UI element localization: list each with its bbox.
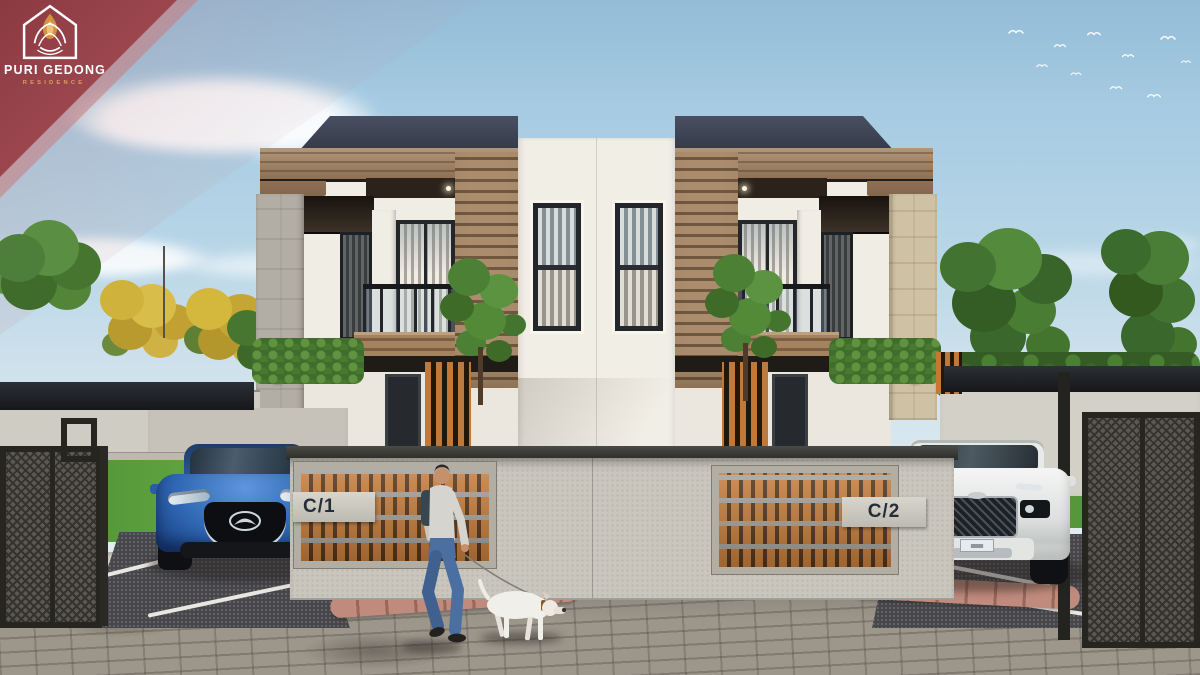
pedestrian (408, 462, 478, 658)
bird-icon (1054, 43, 1067, 49)
unit-label: C/2 (868, 501, 901, 523)
unit-label-plate-right: C/2 (842, 497, 926, 527)
carport-roof-left (0, 382, 254, 410)
brand-logo-icon (22, 4, 78, 60)
mesh-gate-left (0, 446, 102, 628)
bird-icon (1070, 71, 1081, 76)
wall-seam (592, 458, 593, 598)
bird-icon (1036, 63, 1048, 68)
carport-roof-right (944, 366, 1200, 392)
gate-handle (61, 418, 97, 462)
license-plate (960, 539, 994, 552)
courtyard-tree (418, 252, 548, 407)
brand-subtitle: RESIDENCE (4, 80, 104, 86)
mesh-gate-right (1082, 412, 1200, 648)
utility-pole (163, 246, 165, 338)
bird-icon (1110, 85, 1123, 91)
hip-roof (675, 112, 937, 152)
gate-frame (50, 452, 55, 622)
background-tree (0, 220, 95, 340)
downlight (446, 186, 451, 191)
unit-label: C/1 (303, 496, 336, 518)
hedge (252, 338, 364, 384)
bird-icon (1147, 92, 1161, 98)
bird-icon (1181, 59, 1191, 64)
hip-roof (256, 112, 518, 152)
tall-window (615, 203, 663, 331)
downlight (742, 186, 747, 191)
bird-icon (1122, 53, 1135, 59)
hyundai-emblem-icon (968, 492, 986, 499)
gate-frame (1140, 418, 1145, 642)
mazda-emblem-icon (224, 508, 266, 534)
bird-icon (1160, 34, 1176, 41)
stone-column (256, 194, 304, 420)
hedge (829, 338, 941, 384)
courtyard-tree (683, 248, 813, 403)
architectural-render: PURI GEDONG RESIDENCE (0, 0, 1200, 675)
bird-icon (1008, 28, 1024, 35)
dog (478, 578, 566, 646)
headlight (1020, 500, 1050, 518)
window-mullion (620, 265, 658, 270)
gate-post (100, 446, 108, 626)
stone-column (889, 194, 937, 420)
brand-name: PURI GEDONG (4, 63, 104, 77)
bird-icon (1087, 30, 1101, 36)
unit-label-plate-left: C/1 (293, 492, 375, 522)
